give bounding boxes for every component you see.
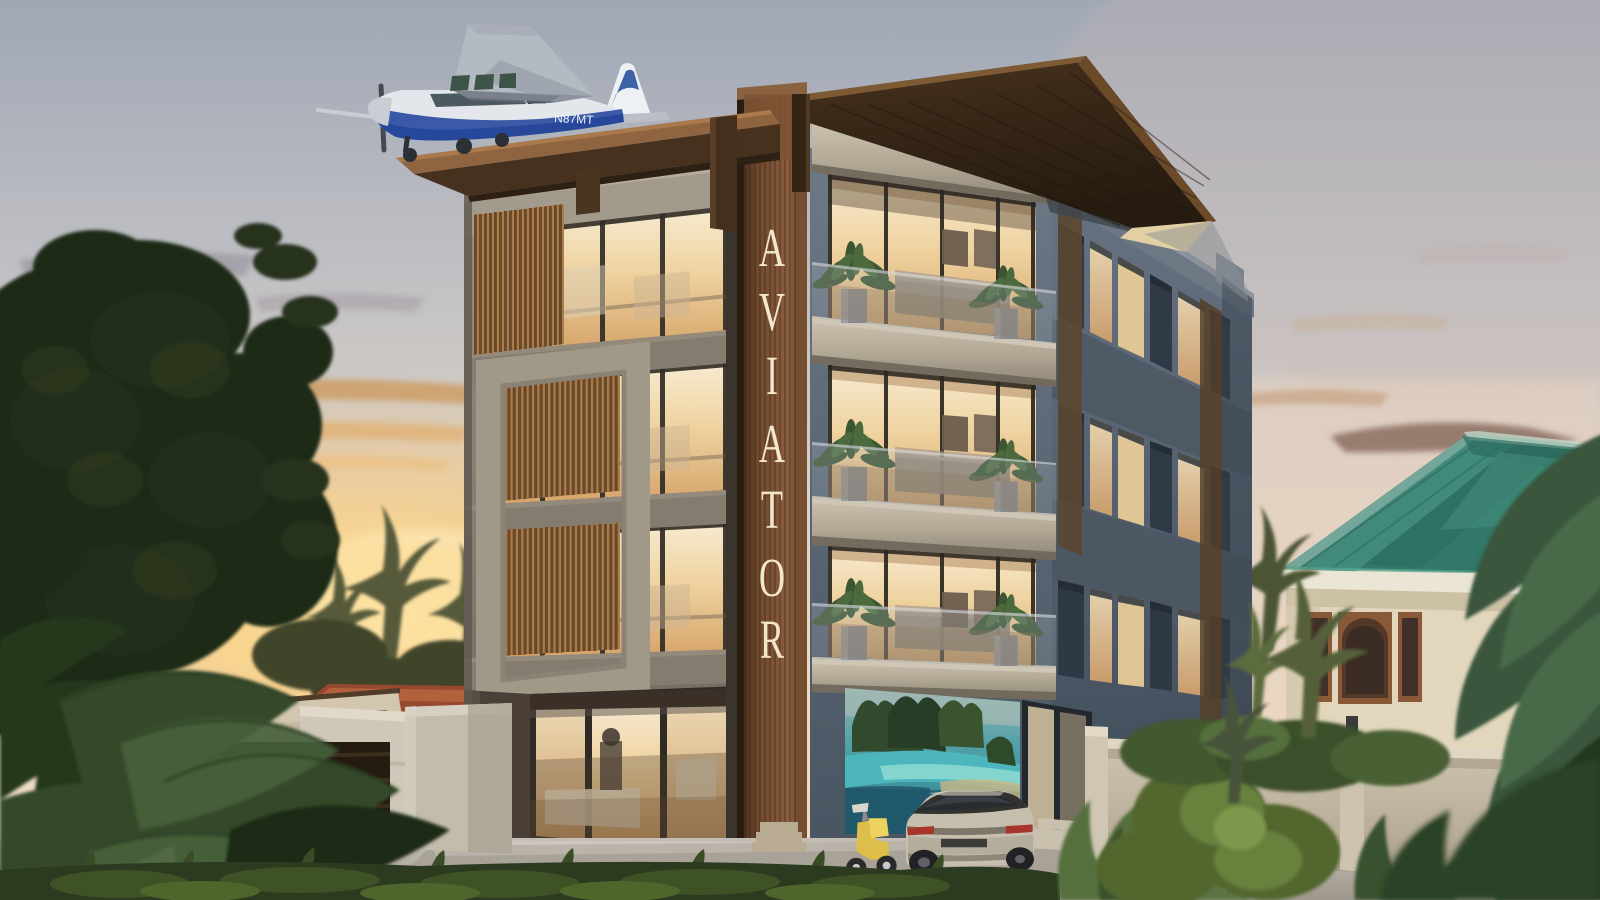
svg-text:I: I xyxy=(766,346,778,407)
svg-text:V: V xyxy=(759,282,785,343)
svg-text:A: A xyxy=(759,414,785,475)
svg-text:N87MT: N87MT xyxy=(554,111,595,127)
svg-text:T: T xyxy=(761,480,783,541)
svg-text:R: R xyxy=(760,610,784,671)
svg-text:O: O xyxy=(759,548,785,609)
svg-text:A: A xyxy=(759,218,785,279)
